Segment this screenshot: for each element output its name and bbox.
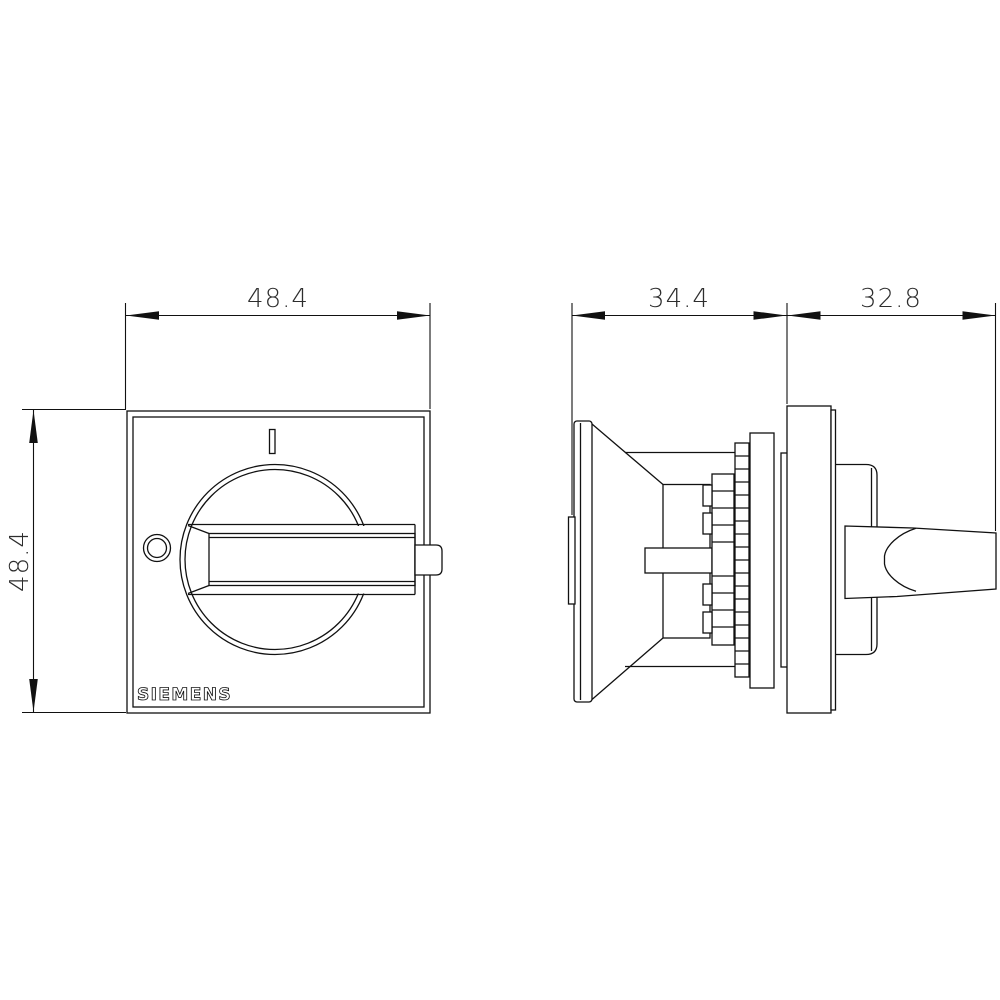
switch-shaft [845, 526, 996, 599]
width-extension-lines [126, 303, 431, 409]
technical-drawing-page: SIEMENS 48.4 48.4 [0, 0, 1000, 1000]
body-depth-value: 32.8 [860, 284, 922, 314]
front-width-dimension: 48.4 [126, 284, 431, 409]
mounting-plate [787, 406, 836, 713]
spline-section [703, 433, 788, 688]
lever-chamfers [188, 526, 209, 594]
position-on-mark [270, 430, 276, 454]
height-arrow-top-icon [29, 410, 38, 443]
height-extension-lines [22, 410, 126, 713]
handle-face-outline [574, 421, 592, 702]
padlock-hole-inner [148, 539, 167, 558]
height-arrow-bottom-icon [29, 679, 38, 712]
spline-tooth [703, 513, 712, 534]
mounting-plate-back-edge [831, 410, 836, 710]
shaft-silhouette [845, 526, 996, 599]
handle-face-tab [569, 517, 576, 604]
width-arrow-left-icon [126, 311, 159, 320]
brand-label: SIEMENS [137, 685, 232, 705]
handle-depth-value: 34.4 [648, 284, 710, 314]
body-depth-arrow-right-icon [963, 311, 996, 320]
coupling-disc [750, 433, 774, 688]
front-view: SIEMENS 48.4 48.4 [5, 284, 442, 713]
width-arrow-right-icon [397, 311, 430, 320]
lever-end-tab [415, 545, 442, 575]
knob-inner-circle [185, 470, 365, 650]
spline-strip-a [712, 474, 734, 645]
front-height-dimension: 48.4 [5, 410, 126, 713]
spline-tooth [703, 584, 712, 605]
handle-lever [188, 525, 442, 595]
front-height-value: 48.4 [5, 530, 35, 592]
mounting-plate-outline [787, 406, 831, 713]
switch-dimension-drawing: SIEMENS 48.4 48.4 [0, 0, 1000, 1000]
front-width-value: 48.4 [247, 284, 309, 314]
handle-depth-arrow-left-icon [572, 311, 605, 320]
lever-profile [645, 548, 712, 573]
spline-tooth [703, 485, 712, 506]
body-depth-arrow-left-icon [788, 311, 821, 320]
spline-tooth [703, 612, 712, 633]
handle-depth-arrow-right-icon [754, 311, 787, 320]
padlock-hole-icon [144, 535, 171, 562]
side-view: 34.4 32.8 [569, 284, 997, 713]
lever-mask [352, 526, 414, 594]
